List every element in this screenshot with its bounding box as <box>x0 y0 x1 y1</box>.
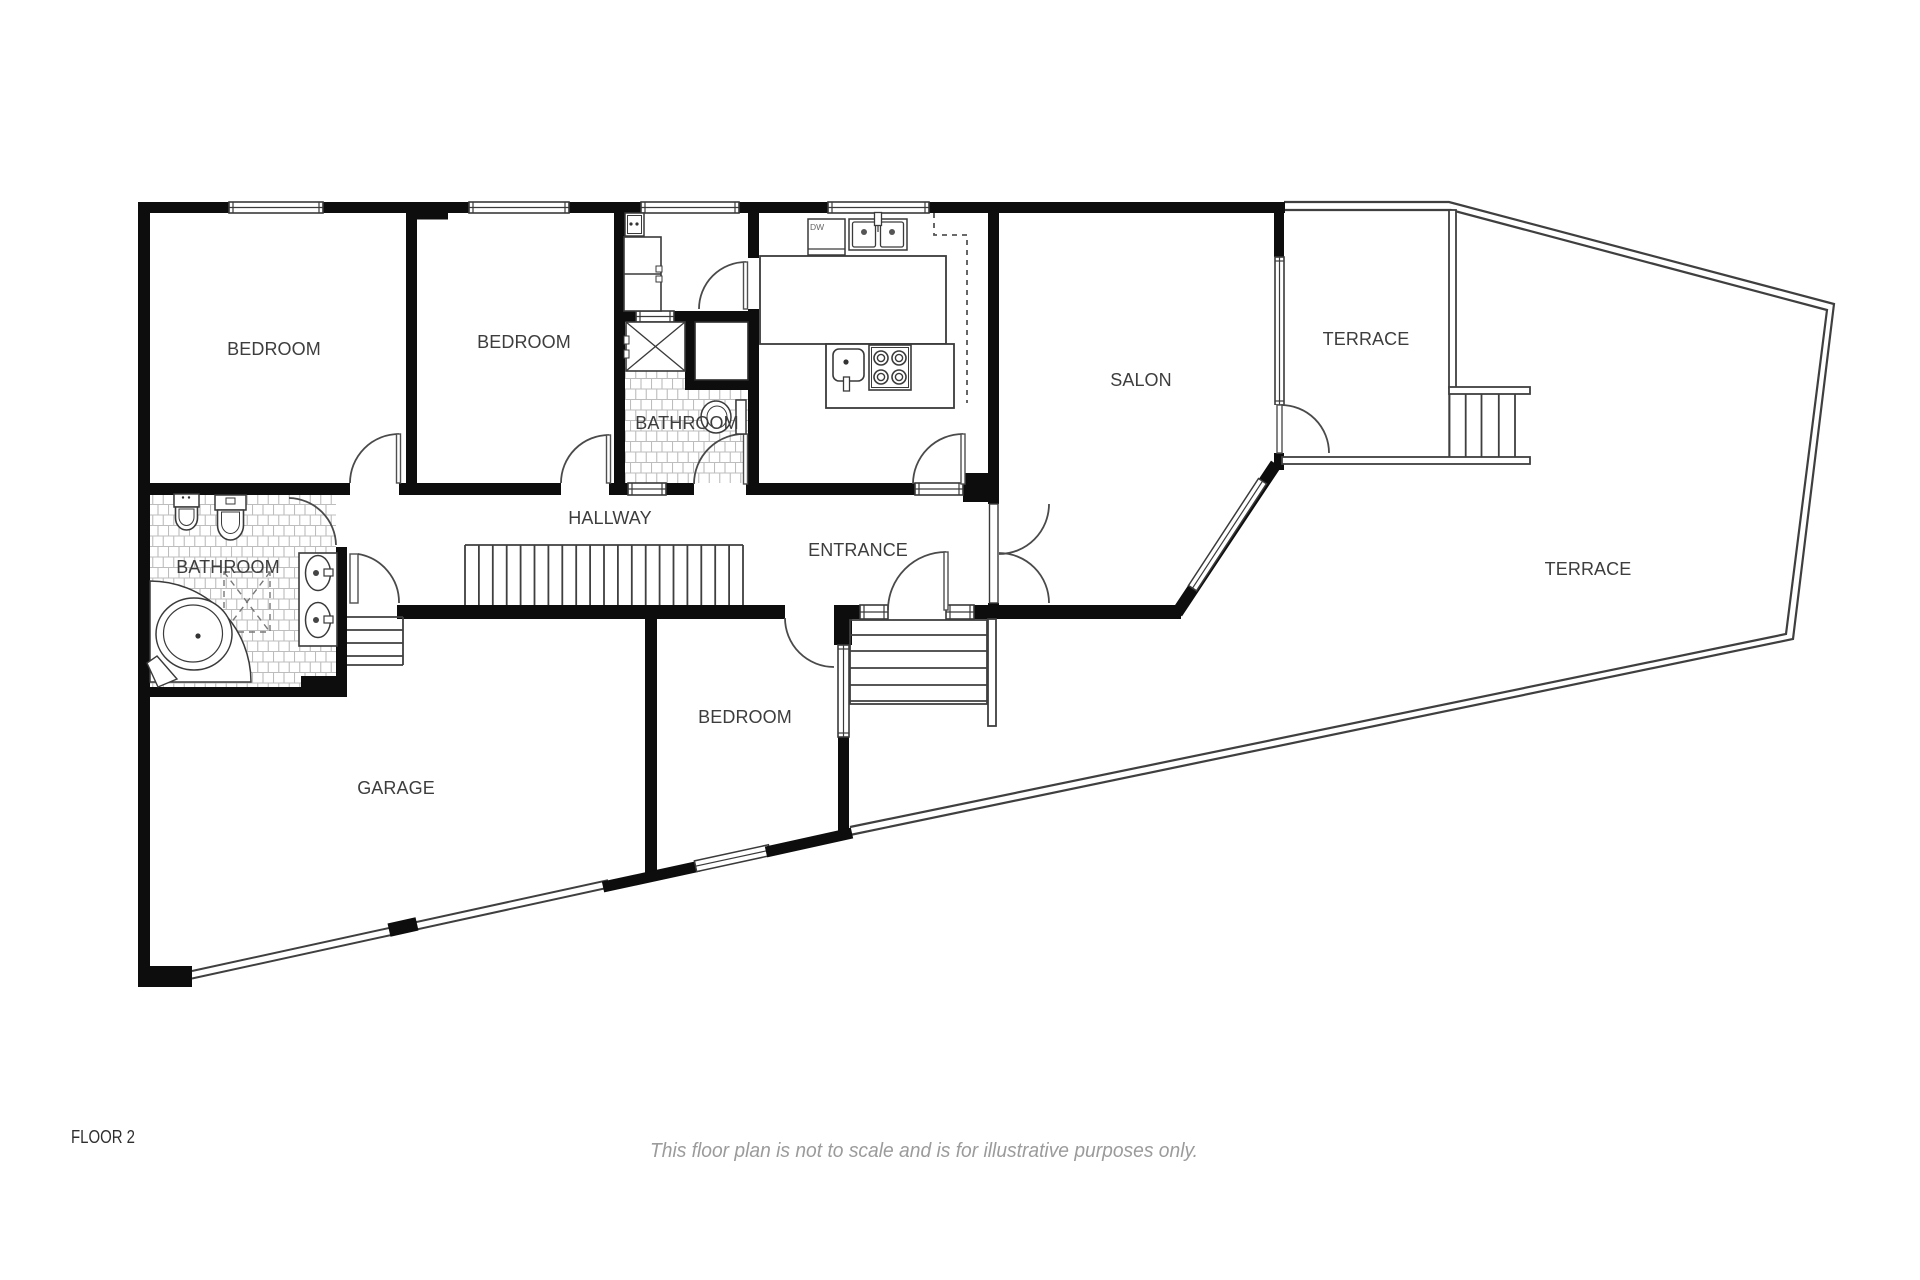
svg-text:BATHROOM: BATHROOM <box>635 413 738 433</box>
svg-text:DW: DW <box>810 222 824 232</box>
svg-text:ENTRANCE: ENTRANCE <box>808 540 908 560</box>
svg-text:BEDROOM: BEDROOM <box>227 339 321 359</box>
svg-text:BEDROOM: BEDROOM <box>698 707 792 727</box>
svg-text:BATHROOM: BATHROOM <box>176 557 279 577</box>
svg-text:BEDROOM: BEDROOM <box>477 332 571 352</box>
svg-text:This floor plan is not to scal: This floor plan is not to scale and is f… <box>650 1140 1198 1162</box>
svg-text:FLOOR 2: FLOOR 2 <box>71 1127 135 1147</box>
svg-text:HALLWAY: HALLWAY <box>568 508 651 528</box>
svg-text:TERRACE: TERRACE <box>1323 329 1410 349</box>
svg-text:GARAGE: GARAGE <box>357 778 435 798</box>
svg-text:SALON: SALON <box>1110 370 1172 390</box>
svg-text:TERRACE: TERRACE <box>1545 559 1632 579</box>
